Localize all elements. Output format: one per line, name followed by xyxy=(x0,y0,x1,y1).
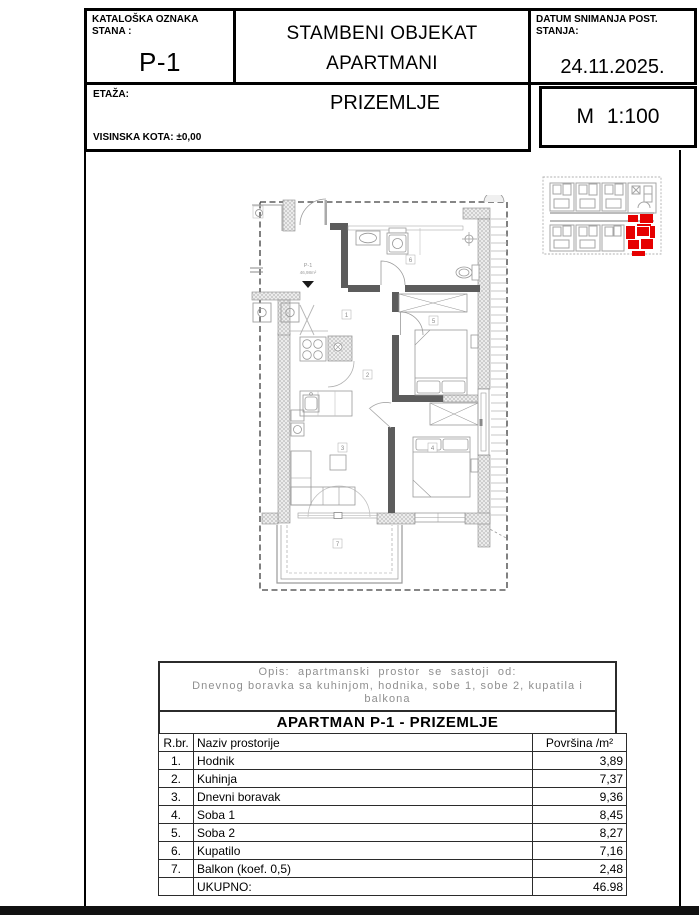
project-title-line1: STAMBENI OBJEKAT xyxy=(236,19,528,49)
key-plan-highlight xyxy=(626,214,655,256)
bathroom-fixtures xyxy=(356,228,479,280)
row-area: 7,16 xyxy=(533,842,627,860)
description-block: Opis: apartmanski prostor se sastoji od:… xyxy=(158,661,617,710)
titleblock-date-box: DATUM SNIMANJA POST. STANJA: 24.11.2025. xyxy=(528,8,697,85)
row-name: Balkon (koef. 0,5) xyxy=(194,860,533,878)
table-row: 7. Balkon (koef. 0,5) 2,48 xyxy=(159,860,627,878)
room-tag-kupatilo: 6 xyxy=(406,255,415,264)
titleblock-project-box: STAMBENI OBJEKAT APARTMANI xyxy=(233,8,531,85)
room-table: R.br. Naziv prostorije Površina /m² 1. H… xyxy=(158,733,627,896)
key-plan xyxy=(540,168,665,263)
description-line2: Dnevnog boravka sa kuhinjom, hodnika, so… xyxy=(160,680,615,694)
row-num: 7. xyxy=(159,860,194,878)
col-header-num: R.br. xyxy=(159,734,194,752)
titleblock-floor-box: ETAŽA: PRIZEMLJE VISINSKA KOTA: ±0,00 xyxy=(84,82,531,152)
living-room-furniture xyxy=(291,451,355,505)
col-header-name: Naziv prostorije xyxy=(194,734,533,752)
row-area: 3,89 xyxy=(533,752,627,770)
elevation-note: VISINSKA KOTA: ±0,00 xyxy=(93,132,201,143)
room-tag-hodnik: 1 xyxy=(342,310,351,319)
row-name: Hodnik xyxy=(194,752,533,770)
floor-name: PRIZEMLJE xyxy=(236,92,534,115)
survey-date: 24.11.2025. xyxy=(531,56,694,79)
row-num: 1. xyxy=(159,752,194,770)
row-name: Kupatilo xyxy=(194,842,533,860)
description-line1: Opis: apartmanski prostor se sastoji od: xyxy=(160,666,615,680)
description-line3: balkona xyxy=(160,693,615,707)
room-schedule: Opis: apartmanski prostor se sastoji od:… xyxy=(158,661,617,896)
row-area: 7,37 xyxy=(533,770,627,788)
kitchen-fixtures xyxy=(291,336,352,436)
row-num: 6. xyxy=(159,842,194,860)
drawing-sheet: KATALOŠKA OZNAKA STANA : P-1 STAMBENI OB… xyxy=(0,0,699,915)
row-area: 9,36 xyxy=(533,788,627,806)
table-row: 5. Soba 2 8,27 xyxy=(159,824,627,842)
floor-label: ETAŽA: xyxy=(93,89,129,100)
date-label: DATUM SNIMANJA POST. STANJA: xyxy=(531,11,676,41)
total-label: UKUPNO: xyxy=(194,878,533,896)
titleblock-catalog-box: KATALOŠKA OZNAKA STANA : P-1 xyxy=(84,8,236,85)
unit-label: P-1 xyxy=(304,263,313,269)
balcony-outline xyxy=(277,525,402,583)
apartment-title: APARTMAN P-1 - PRIZEMLJE xyxy=(158,710,617,733)
room-tag-dnevni-boravak: 3 xyxy=(338,443,347,452)
table-row: 2. Kuhinja 7,37 xyxy=(159,770,627,788)
row-name: Soba 1 xyxy=(194,806,533,824)
table-row: 3. Dnevni boravak 9,36 xyxy=(159,788,627,806)
unit-label-group: P-1 46,98m² xyxy=(300,263,317,288)
building-entry-arc xyxy=(484,195,504,202)
row-num: 4. xyxy=(159,806,194,824)
bedroom-1-furniture xyxy=(413,403,478,497)
elevation-label: VISINSKA KOTA: xyxy=(93,132,174,143)
total-value: 46.98 xyxy=(533,878,627,896)
room-tag-balkon: 7 xyxy=(333,539,342,548)
row-area: 2,48 xyxy=(533,860,627,878)
drawing-scale: M 1:100 xyxy=(542,89,694,145)
col-header-area: Površina /m² xyxy=(533,734,627,752)
project-title-line2: APARTMANI xyxy=(236,49,528,79)
bedroom-2-furniture xyxy=(399,294,478,395)
table-row: 4. Soba 1 8,45 xyxy=(159,806,627,824)
room-tag-kuhinja: 2 xyxy=(363,370,372,379)
room-tag-soba-1: 4 xyxy=(428,443,437,452)
row-num: 3. xyxy=(159,788,194,806)
row-name: Dnevni boravak xyxy=(194,788,533,806)
catalog-label: KATALOŠKA OZNAKA STANA : xyxy=(87,11,209,41)
row-area: 8,45 xyxy=(533,806,627,824)
row-num: 5. xyxy=(159,824,194,842)
entry-marker xyxy=(302,281,314,288)
unit-area-label: 46,98m² xyxy=(300,270,317,275)
interior-walls xyxy=(330,223,480,513)
room-tag-soba-2: 5 xyxy=(429,316,438,325)
row-area: 8,27 xyxy=(533,824,627,842)
floor-plan-drawing: P-1 46,98m² 1 2 3 4 5 xyxy=(250,195,520,605)
total-empty-cell xyxy=(159,878,194,896)
sheet-bottom-border xyxy=(0,906,699,915)
titleblock-scale-box: M 1:100 xyxy=(539,86,697,148)
table-row: 1. Hodnik 3,89 xyxy=(159,752,627,770)
row-name: Soba 2 xyxy=(194,824,533,842)
table-header-row: R.br. Naziv prostorije Površina /m² xyxy=(159,734,627,752)
table-total-row: UKUPNO: 46.98 xyxy=(159,878,627,896)
unit-code: P-1 xyxy=(87,47,233,78)
facade-ticks xyxy=(491,219,507,515)
row-num: 2. xyxy=(159,770,194,788)
row-name: Kuhinja xyxy=(194,770,533,788)
table-row: 6. Kupatilo 7,16 xyxy=(159,842,627,860)
elevation-value: ±0,00 xyxy=(176,132,201,143)
